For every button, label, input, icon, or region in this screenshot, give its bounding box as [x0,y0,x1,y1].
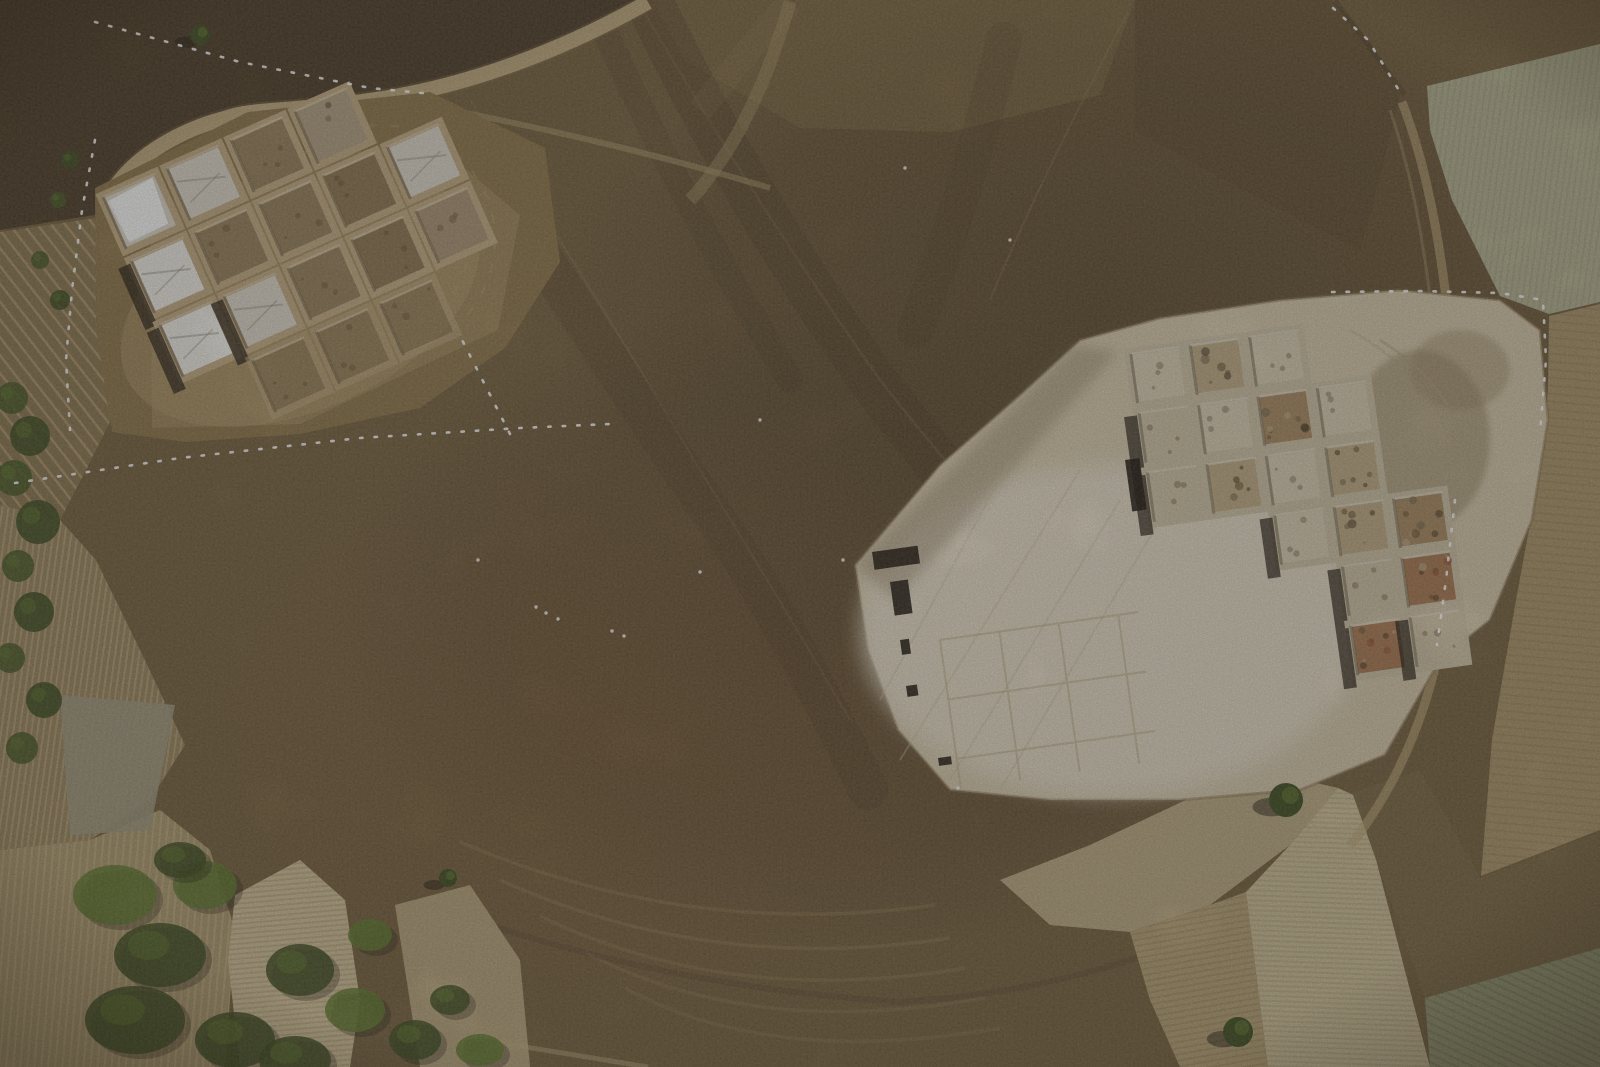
aerial-photo [0,0,1600,1067]
vignette [0,0,1600,1067]
